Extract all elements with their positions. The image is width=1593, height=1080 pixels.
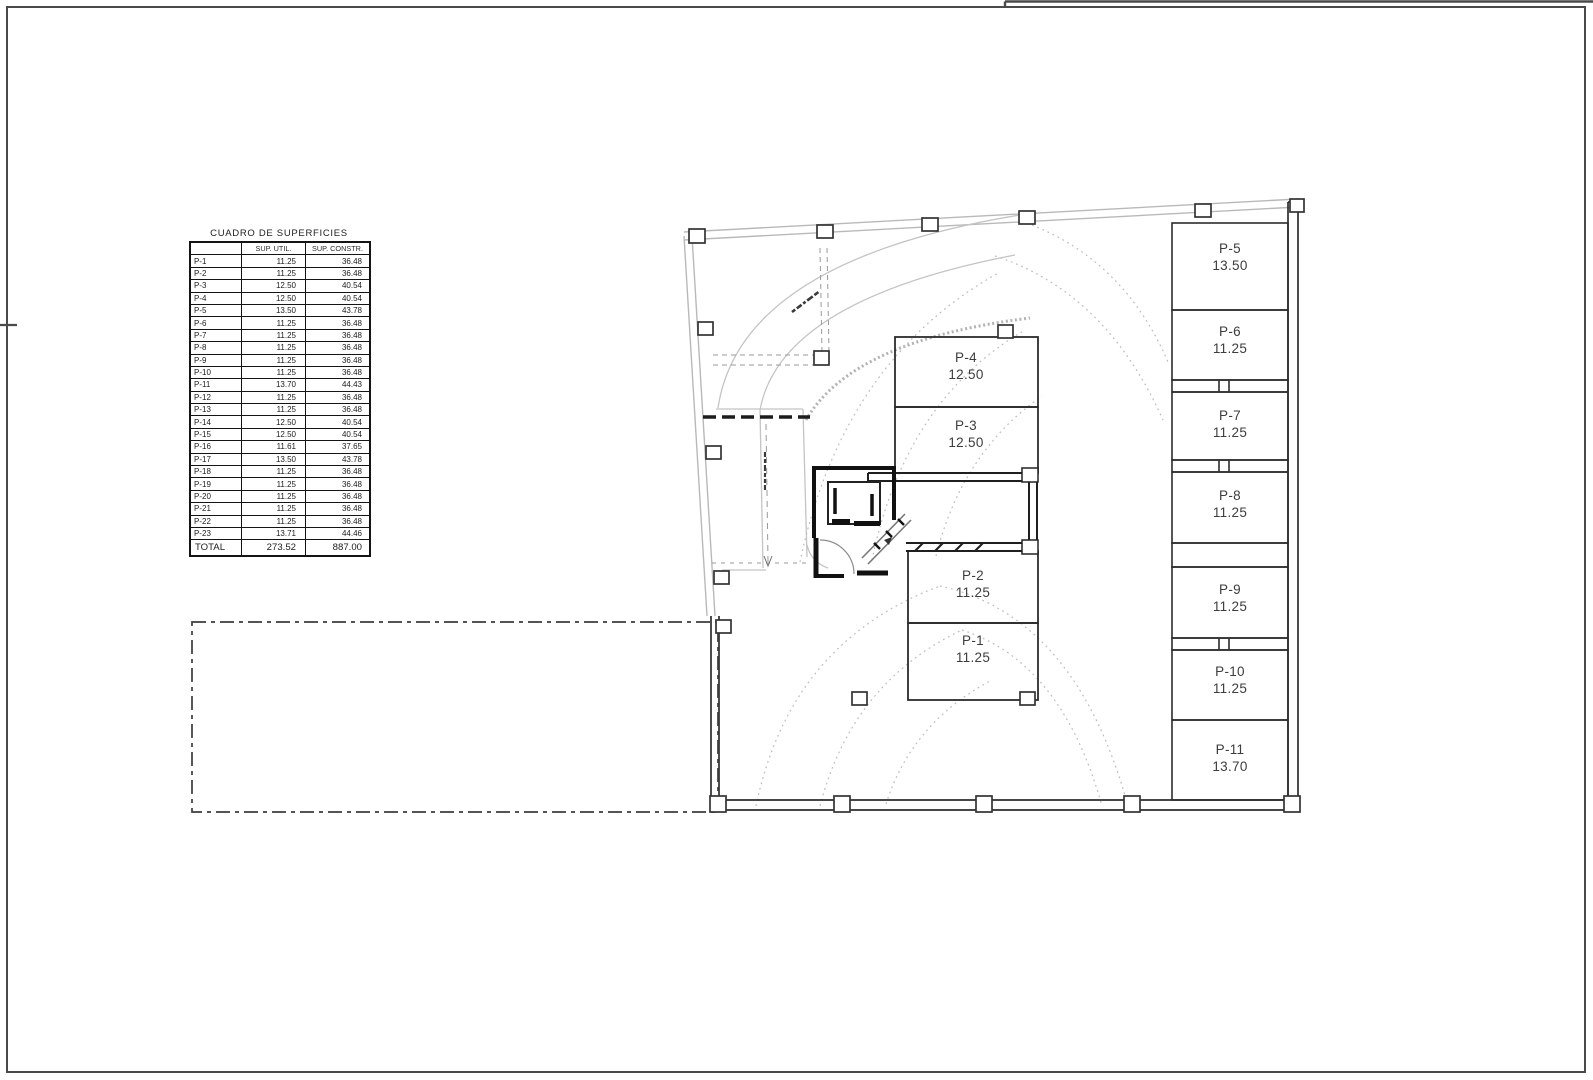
table-title: CUADRO DE SUPERFICIES (189, 228, 369, 239)
stall-area: 11.25 (1213, 425, 1247, 440)
table-row: P-2011.2536.48 (190, 490, 370, 502)
table-row: P-1113.7044.43 (190, 379, 370, 391)
table-row: P-1211.2536.48 (190, 391, 370, 403)
table-row: P-513.5043.78 (190, 304, 370, 316)
header-sup-util: SUP. UTIL. (242, 242, 306, 255)
stall-label: P-5 (1219, 241, 1241, 256)
table-row: P-412.5040.54 (190, 292, 370, 304)
table-row: P-911.2536.48 (190, 354, 370, 366)
corridor-band (1172, 543, 1288, 567)
stall-area: 12.50 (948, 367, 983, 382)
header-empty (190, 242, 242, 255)
stall-label: P-8 (1219, 488, 1241, 503)
table-row: P-1811.2536.48 (190, 466, 370, 478)
stall-area: 13.50 (1212, 258, 1247, 273)
ramp-curb-curve (806, 318, 1030, 420)
table-row: P-1011.2536.48 (190, 366, 370, 378)
stall-label: P-9 (1219, 582, 1241, 597)
surface-table: SUP. UTIL. SUP. CONSTR. P-111.2536.48 P-… (189, 241, 371, 557)
ramp-annotation (765, 292, 818, 490)
stall-label: P-6 (1219, 324, 1241, 339)
table-row: P-1512.5040.54 (190, 428, 370, 440)
table-total-row: TOTAL 273.52 887.00 (190, 540, 370, 557)
table-row: P-2111.2536.48 (190, 503, 370, 515)
building-walls (711, 202, 1298, 810)
stall-label: P-1 (962, 633, 984, 648)
surface-table-block: CUADRO DE SUPERFICIES SUP. UTIL. SUP. CO… (189, 228, 369, 557)
door-arc (820, 540, 854, 574)
stall-labels: P-1 11.25 P-2 11.25 P-3 12.50 P-4 12.50 … (948, 241, 1247, 774)
ramp (716, 213, 1032, 570)
stall-divider (1172, 460, 1288, 472)
stall-label: P-7 (1219, 408, 1241, 423)
table-row: P-211.2536.48 (190, 267, 370, 279)
stall-divider (1172, 638, 1288, 650)
table-row: P-711.2536.48 (190, 329, 370, 341)
projection-dashed-lines (712, 248, 829, 563)
table-row: P-1911.2536.48 (190, 478, 370, 490)
stall-divider (1172, 380, 1288, 392)
turning-arcs (756, 225, 1168, 806)
table-row: P-811.2536.48 (190, 342, 370, 354)
table-row: P-1713.5043.78 (190, 453, 370, 465)
stall-label: P-11 (1216, 742, 1245, 757)
stair-core (814, 468, 911, 578)
header-sup-constr: SUP. CONSTR. (306, 242, 371, 255)
table-row: P-2313.7144.46 (190, 527, 370, 539)
stall-area: 11.25 (1213, 681, 1247, 696)
stall-area: 11.25 (956, 650, 990, 665)
table-row: P-312.5040.54 (190, 280, 370, 292)
stall-label: P-2 (962, 568, 984, 583)
stall-label: P-10 (1215, 664, 1245, 679)
table-row: P-1611.6137.65 (190, 441, 370, 453)
table-header-row: SUP. UTIL. SUP. CONSTR. (190, 242, 370, 255)
stall-area: 11.25 (1213, 505, 1247, 520)
table-row: P-2211.2536.48 (190, 515, 370, 527)
table-row: P-111.2536.48 (190, 255, 370, 267)
stall-area: 11.25 (956, 585, 990, 600)
stall-label: P-4 (955, 350, 977, 365)
stall-area: 12.50 (948, 435, 983, 450)
stall-area: 11.25 (1213, 599, 1247, 614)
stall-area: 13.70 (1212, 759, 1247, 774)
table-row: P-1412.5040.54 (190, 416, 370, 428)
drawing-sheet: P-1 11.25 P-2 11.25 P-3 12.50 P-4 12.50 … (0, 0, 1593, 1080)
dashed-zone-outline (192, 622, 718, 812)
table-row: P-611.2536.48 (190, 317, 370, 329)
stall-label: P-3 (955, 418, 977, 433)
table-row: P-1311.2536.48 (190, 404, 370, 416)
stall-area: 11.25 (1213, 341, 1247, 356)
